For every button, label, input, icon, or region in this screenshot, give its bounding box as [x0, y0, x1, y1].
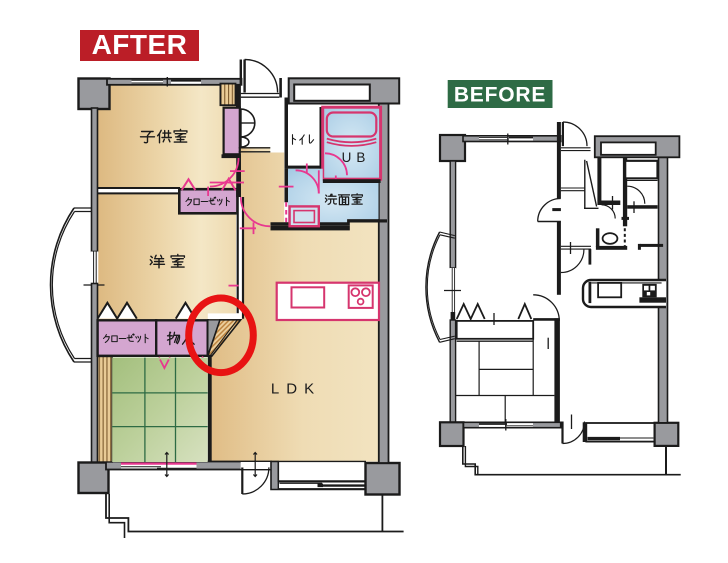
- svg-text:AFTER: AFTER: [92, 29, 188, 60]
- svg-text:UB: UB: [342, 150, 371, 165]
- svg-text:BEFORE: BEFORE: [454, 84, 546, 107]
- svg-text:LDK: LDK: [271, 380, 321, 397]
